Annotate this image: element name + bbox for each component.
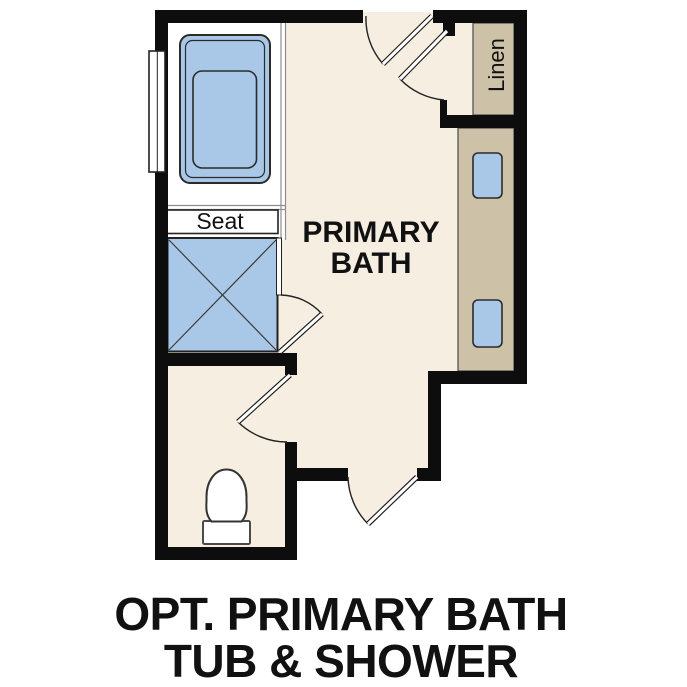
toilet-bowl [206, 470, 246, 522]
bathtub-basin [193, 71, 257, 168]
wall-bath-bottom [297, 468, 348, 481]
caption: OPT. PRIMARY BATH TUB & SHOWER [114, 588, 567, 687]
wall-top-right [433, 10, 527, 23]
vanity-sink-top [473, 153, 502, 198]
shower-seat-bench: Seat [166, 208, 278, 234]
toilet [203, 470, 250, 545]
toilet-tank [203, 521, 250, 544]
wall-lower-right [428, 371, 527, 384]
wall-right [514, 10, 527, 384]
wall-linen-bottom [447, 115, 527, 128]
floor-top-door-opening [363, 12, 433, 23]
wall-linen-jamb-bottom [440, 100, 447, 128]
wall-entry-jamb [417, 468, 441, 481]
floor-entry-door-wedge [348, 468, 417, 524]
linen-label: Linen [484, 38, 509, 92]
caption-line1: OPT. PRIMARY BATH [114, 588, 567, 640]
shower [168, 238, 282, 352]
caption-line2: TUB & SHOWER [164, 635, 519, 687]
room-label-line1: PRIMARY [302, 216, 439, 249]
floor-plan-page: Seat [0, 0, 687, 687]
window [149, 51, 165, 172]
floor-lower-bath [297, 371, 441, 481]
wall-top-left [155, 10, 363, 23]
floor-plan-drawing: Seat [0, 0, 687, 687]
seat-label: Seat [196, 208, 244, 234]
bathtub [180, 35, 270, 183]
wall-wc-right-lower [285, 442, 297, 560]
room-label-line2: BATH [330, 247, 411, 280]
shower-glass-panel [277, 238, 282, 295]
wall-wc-top [155, 353, 297, 366]
wall-step-vertical [428, 384, 441, 481]
vanity-sink-bottom [473, 300, 502, 347]
wall-wc-bottom [155, 547, 297, 560]
